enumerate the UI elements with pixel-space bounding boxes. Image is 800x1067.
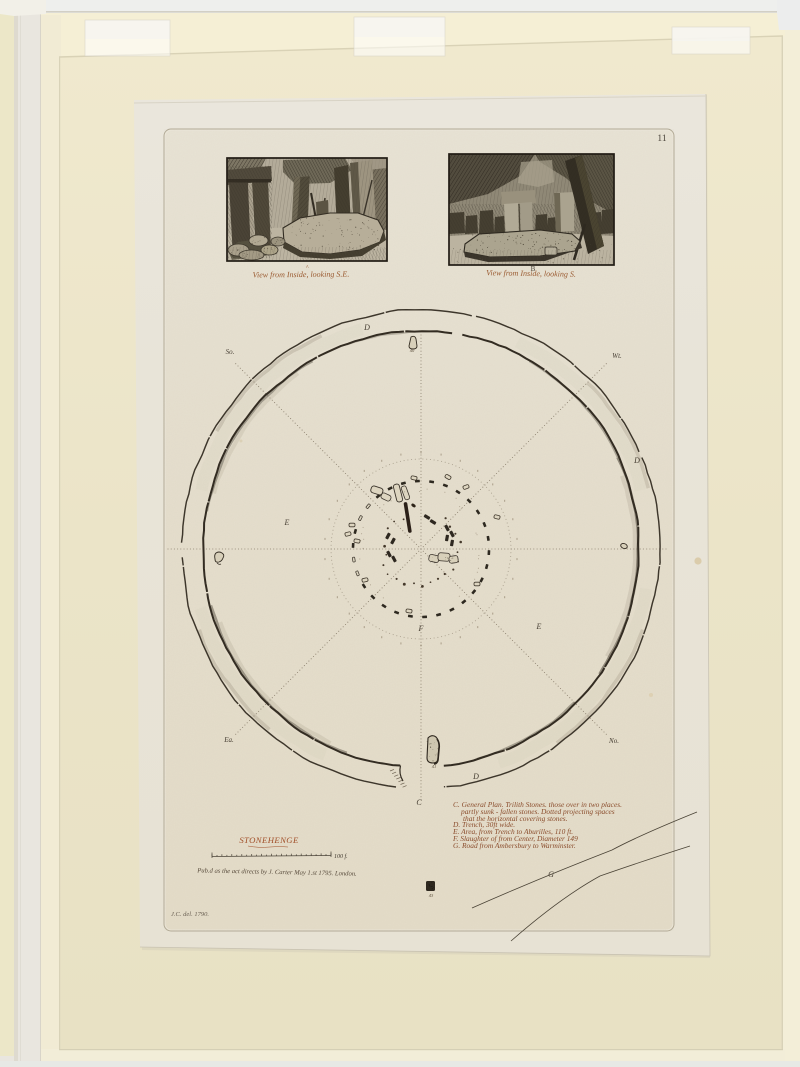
svg-text:40: 40: [410, 348, 415, 353]
svg-text:View from Inside, looking S.E.: View from Inside, looking S.E.: [253, 270, 350, 280]
svg-text:STONEHENGE: STONEHENGE: [239, 835, 299, 845]
svg-text:So.: So.: [226, 348, 235, 356]
svg-text:E: E: [536, 622, 542, 631]
svg-text:Ea.: Ea.: [223, 736, 234, 744]
svg-text:F: F: [418, 624, 424, 633]
svg-text:E: E: [284, 518, 290, 527]
svg-text:J.C. del. 1790.: J.C. del. 1790.: [171, 911, 209, 918]
svg-text:C: C: [416, 798, 422, 807]
svg-text:No.: No.: [608, 737, 619, 745]
svg-text:11: 11: [657, 134, 666, 144]
svg-text:D: D: [633, 456, 640, 465]
svg-text:G: G: [548, 870, 554, 879]
svg-text:41: 41: [432, 764, 437, 769]
svg-text:D: D: [363, 323, 370, 332]
svg-text:D: D: [472, 772, 479, 781]
svg-text:G. Road from Ambersbury to War: G. Road from Ambersbury to Warminster.: [453, 841, 576, 850]
svg-text:View from Inside, looking S.: View from Inside, looking S.: [486, 268, 576, 279]
svg-text:Wt.: Wt.: [612, 352, 622, 360]
svg-text:43: 43: [429, 893, 434, 898]
svg-text:100 f.: 100 f.: [334, 853, 348, 860]
